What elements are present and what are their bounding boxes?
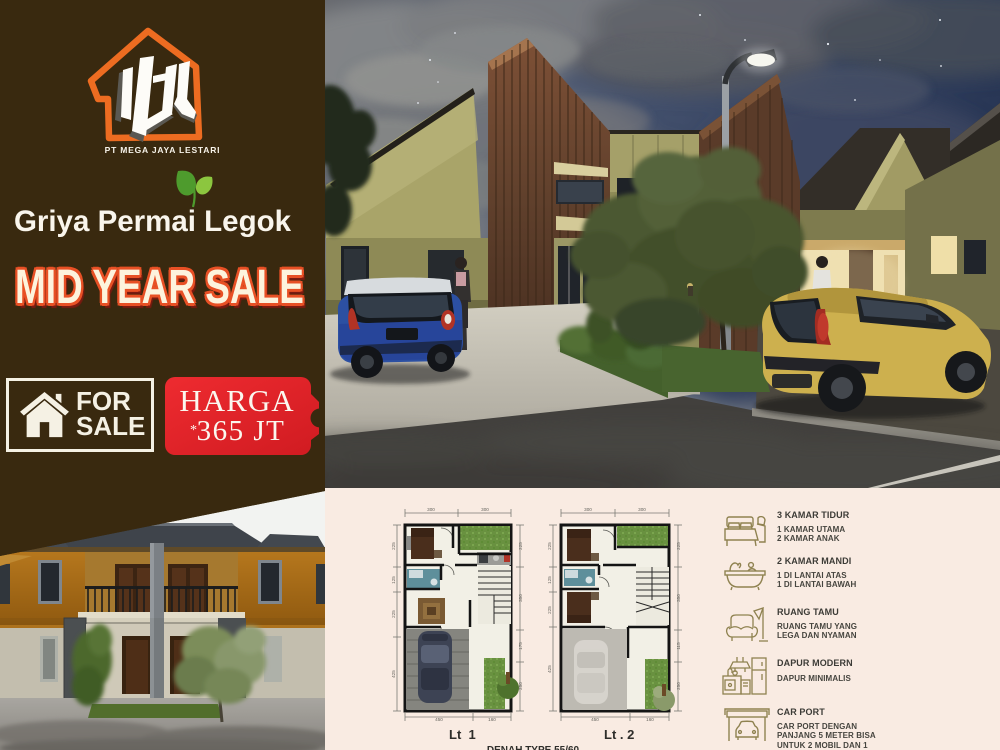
svg-text:225: 225 bbox=[391, 610, 396, 618]
svg-text:225: 225 bbox=[547, 606, 552, 614]
svg-text:450: 450 bbox=[435, 717, 443, 722]
svg-text:175: 175 bbox=[518, 642, 523, 650]
svg-text:300: 300 bbox=[638, 507, 646, 512]
svg-text:160: 160 bbox=[488, 717, 496, 722]
svg-text:300: 300 bbox=[481, 507, 489, 512]
svg-text:425: 425 bbox=[547, 665, 552, 673]
svg-text:350: 350 bbox=[676, 594, 681, 602]
svg-text:225: 225 bbox=[391, 542, 396, 550]
svg-text:425: 425 bbox=[391, 670, 396, 678]
svg-text:250: 250 bbox=[676, 682, 681, 690]
svg-text:300: 300 bbox=[584, 507, 592, 512]
svg-text:Lt 1: Lt 1 bbox=[449, 727, 476, 742]
svg-text:225: 225 bbox=[518, 542, 523, 550]
svg-text:HARGA: HARGA bbox=[179, 383, 294, 418]
svg-text:225: 225 bbox=[547, 542, 552, 550]
svg-text:160: 160 bbox=[646, 717, 654, 722]
svg-text:225: 225 bbox=[676, 542, 681, 550]
svg-text:115: 115 bbox=[676, 642, 681, 650]
svg-text:300: 300 bbox=[427, 507, 435, 512]
svg-text:350: 350 bbox=[518, 594, 523, 602]
svg-text:365 JT: 365 JT bbox=[197, 415, 286, 447]
svg-text:125: 125 bbox=[391, 576, 396, 584]
svg-text:Lt . 2: Lt . 2 bbox=[604, 727, 634, 742]
svg-text:250: 250 bbox=[518, 682, 523, 690]
svg-text:125: 125 bbox=[547, 576, 552, 584]
svg-text:DENAH TYPE 55/60: DENAH TYPE 55/60 bbox=[487, 745, 580, 750]
svg-text:450: 450 bbox=[591, 717, 599, 722]
